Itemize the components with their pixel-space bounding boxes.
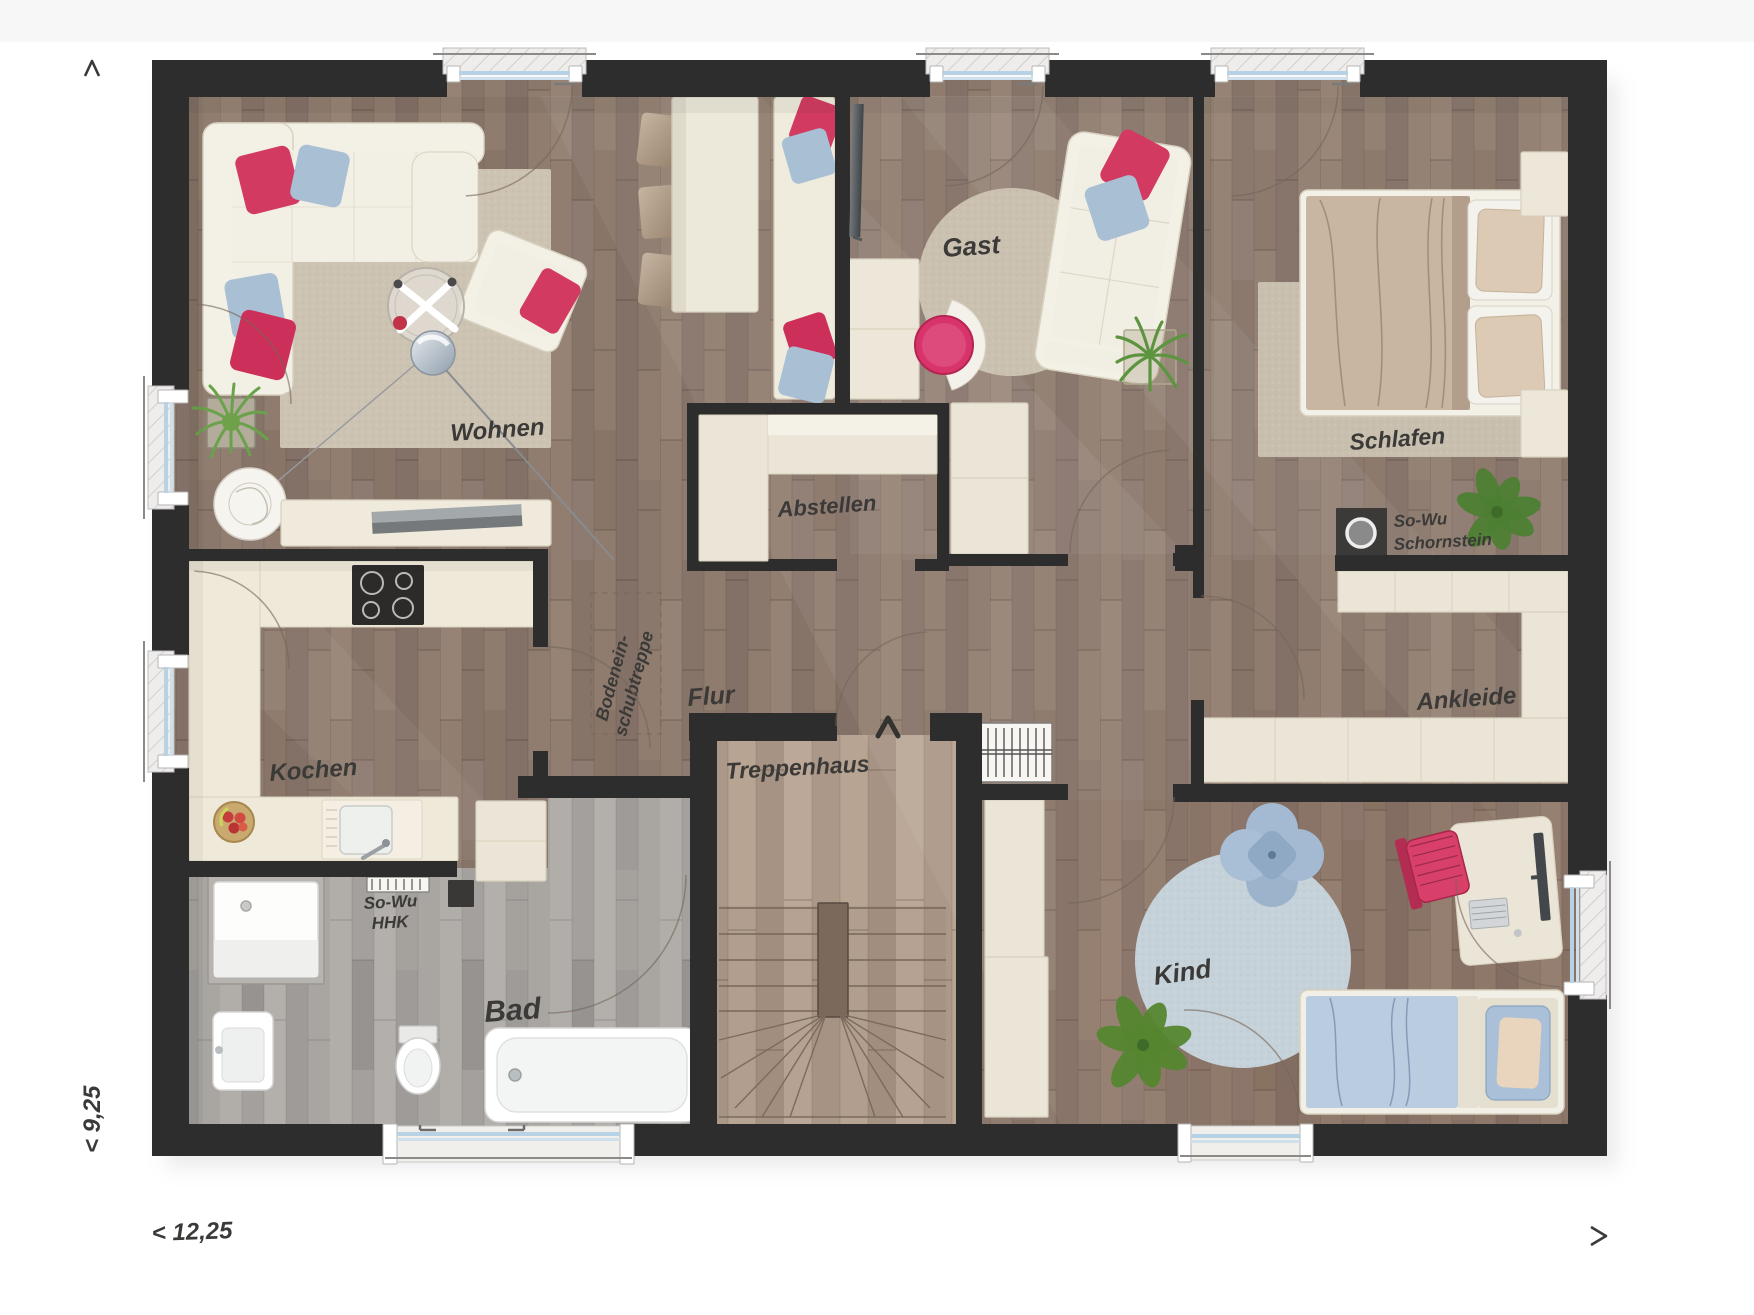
svg-text:< 12,25: < 12,25 (151, 1217, 233, 1247)
svg-text:HHK: HHK (371, 912, 410, 933)
svg-text:So-Wu: So-Wu (363, 891, 418, 913)
svg-text:Flur: Flur (686, 681, 736, 712)
svg-text:< 9,25: < 9,25 (79, 1085, 106, 1153)
svg-text:Bad: Bad (483, 992, 543, 1029)
svg-text:So-Wu: So-Wu (1393, 509, 1448, 531)
svg-text:Gast: Gast (941, 229, 1002, 263)
